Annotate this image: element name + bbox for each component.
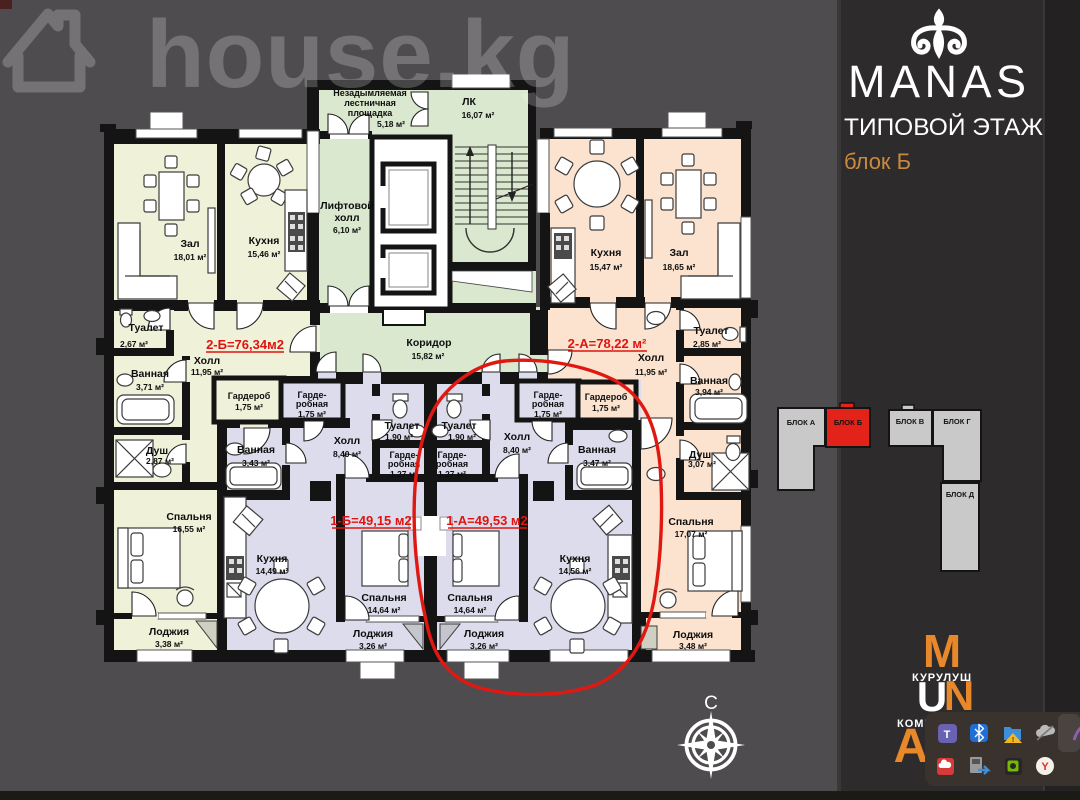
svg-text:Спальня: Спальня <box>447 592 492 604</box>
svg-text:14,64 м²: 14,64 м² <box>368 605 401 615</box>
svg-text:N: N <box>944 672 974 719</box>
svg-text:холл: холл <box>334 212 359 224</box>
svg-text:Лоджия: Лоджия <box>149 626 189 638</box>
svg-text:A: A <box>894 720 929 773</box>
svg-text:5,18 м²: 5,18 м² <box>377 119 405 129</box>
svg-text:Ванная: Ванная <box>578 444 616 456</box>
svg-text:Гардероб: Гардероб <box>228 391 271 401</box>
svg-text:15,47 м²: 15,47 м² <box>590 262 623 272</box>
svg-text:1,75 м²: 1,75 м² <box>534 409 562 419</box>
svg-text:3,48 м²: 3,48 м² <box>679 641 707 651</box>
svg-text:1,75 м²: 1,75 м² <box>298 409 326 419</box>
svg-text:1,90 м²: 1,90 м² <box>448 432 476 442</box>
svg-text:16,07 м²: 16,07 м² <box>462 110 495 120</box>
svg-text:ТИПОВОЙ ЭТАЖ: ТИПОВОЙ ЭТАЖ <box>844 113 1043 141</box>
svg-text:Лифтовой: Лифтовой <box>320 200 373 212</box>
svg-text:Туалет: Туалет <box>694 325 729 337</box>
svg-text:3,71 м²: 3,71 м² <box>136 382 164 392</box>
svg-text:3,47 м²: 3,47 м² <box>583 458 611 468</box>
svg-text:8,40 м²: 8,40 м² <box>503 445 531 455</box>
svg-text:Зал: Зал <box>180 238 199 250</box>
svg-text:2,87 м²: 2,87 м² <box>146 456 174 466</box>
svg-text:Лоджия: Лоджия <box>673 629 713 641</box>
svg-text:Туалет: Туалет <box>385 420 420 432</box>
svg-text:1,27 м²: 1,27 м² <box>438 469 466 479</box>
svg-text:Ванная: Ванная <box>690 375 728 387</box>
svg-text:2-А=78,22 м²: 2-А=78,22 м² <box>568 336 647 351</box>
svg-text:Холл: Холл <box>334 435 360 447</box>
svg-text:14,49 м²: 14,49 м² <box>256 566 289 576</box>
svg-text:3,43 м²: 3,43 м² <box>242 458 270 468</box>
svg-text:T: T <box>944 729 951 741</box>
svg-text:14,56 м²: 14,56 м² <box>559 566 592 576</box>
svg-text:робная: робная <box>388 459 420 469</box>
svg-text:2,85 м²: 2,85 м² <box>693 339 721 349</box>
svg-text:1-Б=49,15 м2: 1-Б=49,15 м2 <box>330 513 412 528</box>
svg-text:Спальня: Спальня <box>668 516 713 528</box>
svg-text:Лоджия: Лоджия <box>353 628 393 640</box>
svg-text:Холл: Холл <box>638 352 664 364</box>
svg-text:2-Б=76,34м2: 2-Б=76,34м2 <box>206 337 284 352</box>
svg-text:1,75 м²: 1,75 м² <box>235 402 263 412</box>
svg-text:1,27 м²: 1,27 м² <box>390 469 418 479</box>
svg-text:1-А=49,53 м2: 1-А=49,53 м2 <box>446 513 528 528</box>
svg-text:Туалет: Туалет <box>129 322 164 334</box>
svg-text:17,07 м²: 17,07 м² <box>675 529 708 539</box>
svg-text:!: ! <box>1012 737 1014 744</box>
svg-text:Спальня: Спальня <box>166 511 211 523</box>
svg-text:3,26 м²: 3,26 м² <box>470 641 498 651</box>
svg-text:11,95 м²: 11,95 м² <box>191 367 223 377</box>
svg-text:3,26 м²: 3,26 м² <box>359 641 387 651</box>
svg-text:14,64 м²: 14,64 м² <box>454 605 487 615</box>
svg-text:M: M <box>923 625 961 677</box>
svg-text:Ванная: Ванная <box>237 444 275 456</box>
svg-text:15,46 м²: 15,46 м² <box>248 249 281 259</box>
svg-text:робная: робная <box>296 399 328 409</box>
svg-text:house.kg: house.kg <box>146 1 575 108</box>
svg-text:БЛОК Б: БЛОК Б <box>834 418 863 427</box>
svg-text:робная: робная <box>532 399 564 409</box>
svg-text:Туалет: Туалет <box>442 420 477 432</box>
svg-text:Кухня: Кухня <box>257 553 288 565</box>
svg-text:Холл: Холл <box>194 355 220 367</box>
svg-text:Кухня: Кухня <box>560 553 591 565</box>
svg-text:8,40 м²: 8,40 м² <box>333 449 361 459</box>
svg-text:робная: робная <box>436 459 468 469</box>
svg-text:площадка: площадка <box>348 108 393 118</box>
svg-text:1,90 м²: 1,90 м² <box>385 432 413 442</box>
svg-text:С: С <box>704 693 718 714</box>
svg-text:3,38 м²: 3,38 м² <box>155 639 183 649</box>
svg-text:Лоджия: Лоджия <box>464 628 504 640</box>
svg-text:БЛОК А: БЛОК А <box>787 418 816 427</box>
svg-text:БЛОК Д: БЛОК Д <box>946 490 975 499</box>
svg-text:Зал: Зал <box>669 247 688 259</box>
svg-text:Ванная: Ванная <box>131 368 169 380</box>
svg-text:MANAS: MANAS <box>848 56 1031 107</box>
svg-text:Холл: Холл <box>504 431 530 443</box>
svg-text:18,65 м²: 18,65 м² <box>663 262 696 272</box>
svg-text:Коридор: Коридор <box>406 337 451 349</box>
svg-text:18,01 м²: 18,01 м² <box>174 252 207 262</box>
svg-text:блок Б: блок Б <box>844 149 911 174</box>
svg-text:16,55 м²: 16,55 м² <box>173 524 206 534</box>
svg-text:11,95 м²: 11,95 м² <box>635 367 667 377</box>
svg-text:БЛОК Г: БЛОК Г <box>943 417 971 426</box>
svg-text:Y: Y <box>1041 761 1049 773</box>
svg-text:Кухня: Кухня <box>591 247 622 259</box>
svg-text:Гардероб: Гардероб <box>585 392 628 402</box>
svg-text:БЛОК В: БЛОК В <box>896 417 925 426</box>
svg-text:Кухня: Кухня <box>249 235 280 247</box>
svg-text:3,94 м²: 3,94 м² <box>695 387 723 397</box>
svg-text:Спальня: Спальня <box>361 592 406 604</box>
svg-text:2,67 м²: 2,67 м² <box>120 339 148 349</box>
svg-text:3,07 м²: 3,07 м² <box>688 459 716 469</box>
svg-text:6,10 м²: 6,10 м² <box>333 225 361 235</box>
svg-text:1,75 м²: 1,75 м² <box>592 403 620 413</box>
svg-text:15,82 м²: 15,82 м² <box>412 351 445 361</box>
